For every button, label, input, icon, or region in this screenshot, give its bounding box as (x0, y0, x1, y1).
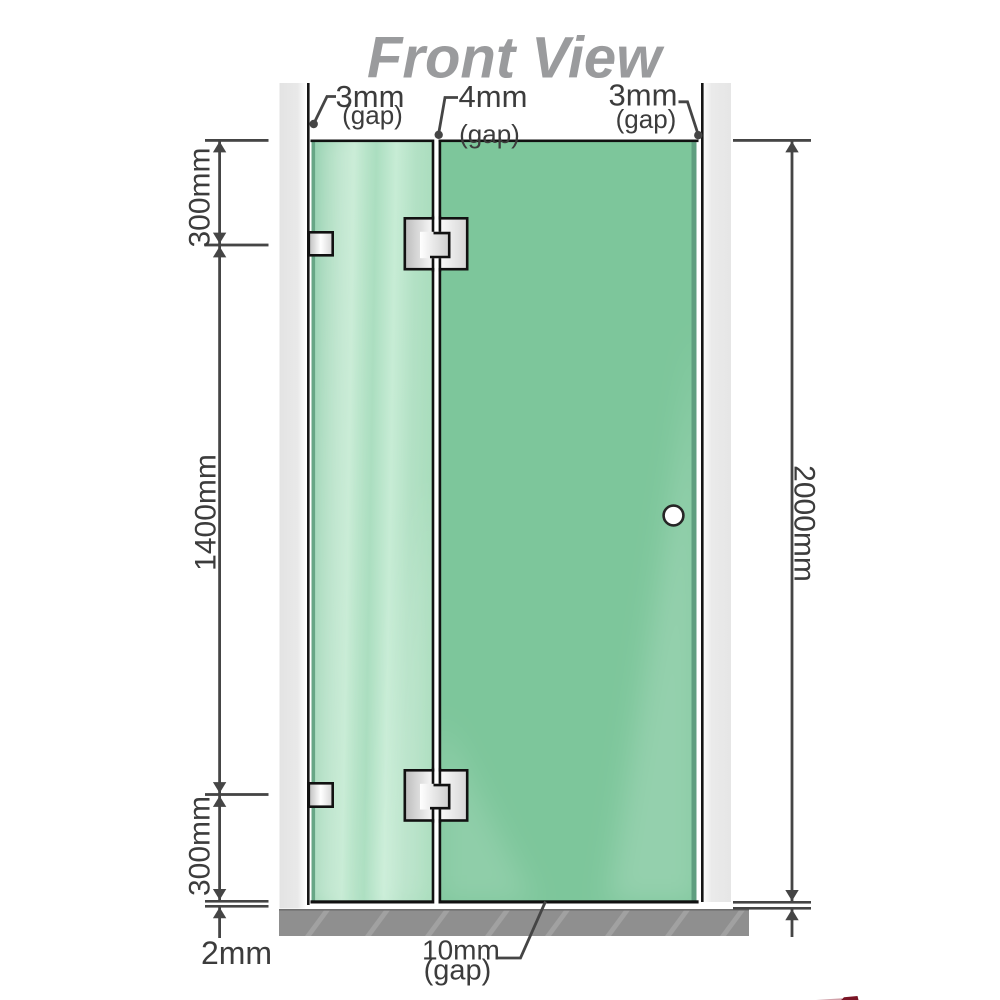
svg-text:2000mm: 2000mm (788, 465, 821, 582)
svg-text:(gap): (gap) (459, 119, 520, 149)
svg-text:4mm: 4mm (459, 79, 528, 114)
svg-text:(gap): (gap) (616, 104, 677, 134)
svg-text:2mm: 2mm (201, 935, 272, 971)
svg-text:(gap): (gap) (424, 955, 492, 987)
svg-text:1400mm: 1400mm (190, 454, 223, 571)
svg-text:300mm: 300mm (184, 796, 217, 896)
svg-text:(gap): (gap) (342, 100, 403, 130)
svg-text:300mm: 300mm (184, 147, 217, 247)
